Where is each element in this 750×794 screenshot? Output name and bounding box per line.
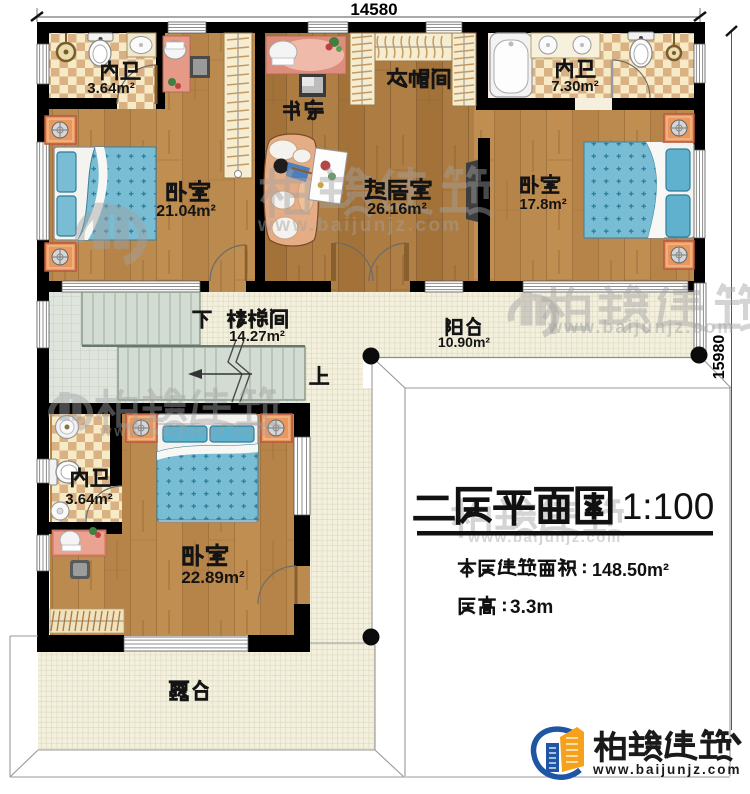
svg-text:14.27m²: 14.27m² xyxy=(229,328,285,345)
svg-text:1:100: 1:100 xyxy=(622,486,715,527)
svg-text:17.8m²: 17.8m² xyxy=(519,196,567,213)
svg-text:www.baijunjz.com: www.baijunjz.com xyxy=(592,762,742,777)
svg-text:3.64m²: 3.64m² xyxy=(65,491,113,508)
svg-text:14580: 14580 xyxy=(350,0,397,19)
svg-text:7.30m²: 7.30m² xyxy=(551,78,599,95)
svg-text:3.64m²: 3.64m² xyxy=(87,80,135,97)
svg-text:21.04m²: 21.04m² xyxy=(156,203,216,220)
svg-text:www.baijunjz.com: www.baijunjz.com xyxy=(547,317,735,337)
svg-text:15980: 15980 xyxy=(711,335,728,380)
svg-text:www.baijunjz.com: www.baijunjz.com xyxy=(257,215,462,236)
svg-text:www.baijunjz.com: www.baijunjz.com xyxy=(99,424,273,440)
svg-text:22.89m²: 22.89m² xyxy=(181,568,245,587)
svg-text:148.50m²: 148.50m² xyxy=(592,560,669,580)
svg-text:10.90m²: 10.90m² xyxy=(438,334,490,350)
svg-text:26.16m²: 26.16m² xyxy=(367,201,427,218)
svg-text:3.3m: 3.3m xyxy=(510,597,553,618)
